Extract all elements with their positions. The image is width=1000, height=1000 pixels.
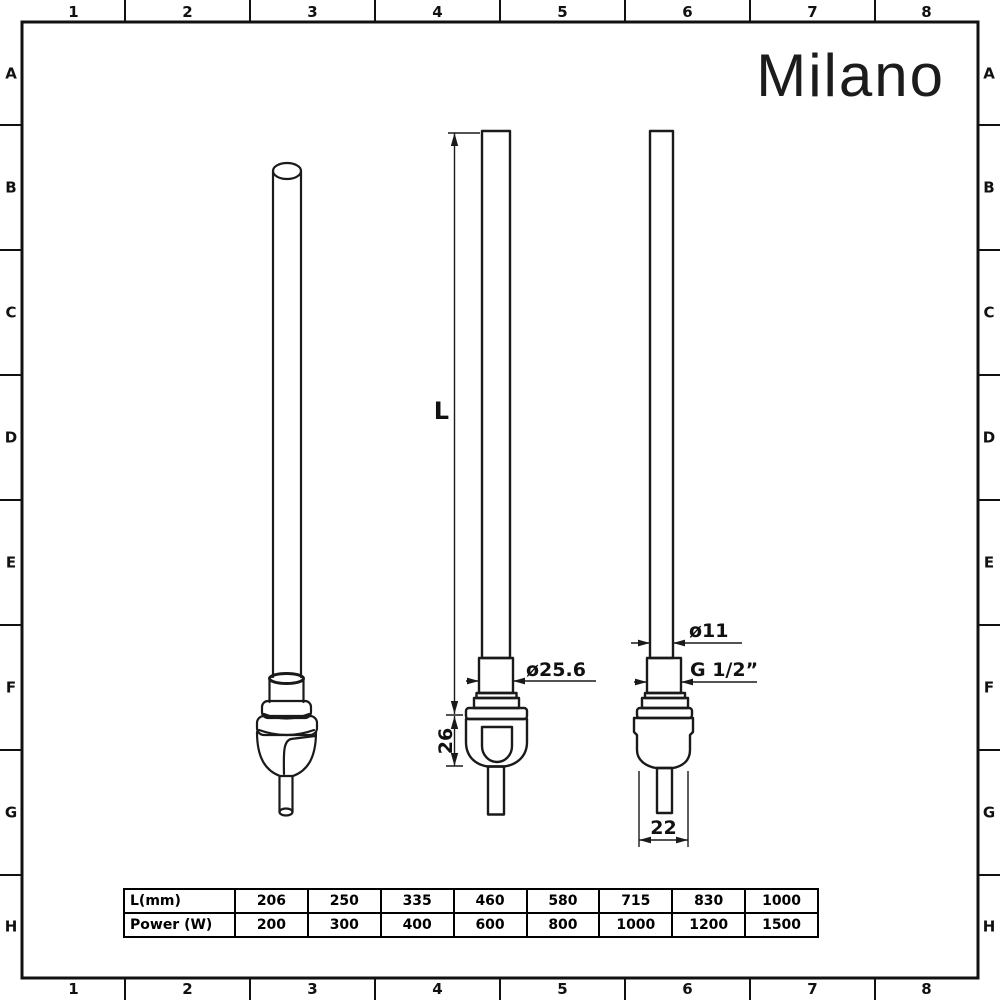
- table-cell: 460: [454, 889, 527, 913]
- collar-top-edge: [270, 674, 304, 684]
- bottom-stub: [657, 768, 672, 813]
- grid-column-label: 8: [921, 3, 931, 21]
- table-cell: 580: [527, 889, 600, 913]
- length-dimension-label: L: [434, 397, 449, 425]
- grid-row-label: D: [5, 429, 17, 447]
- grid-column-label: 4: [432, 3, 442, 21]
- table-cell: 715: [599, 889, 672, 913]
- table-cell: 600: [454, 913, 527, 937]
- thread-collar: [479, 658, 513, 693]
- perspective-view: [257, 163, 317, 816]
- side-view: [634, 131, 693, 813]
- stub-bottom-ellipse: [280, 809, 293, 816]
- grid-column-label: 2: [182, 980, 192, 998]
- body-inner-detail: [482, 727, 512, 762]
- drawing-sheet: 1 2 3 4 5 6 7 8 1 2 3 4 5 6 7 8 A B C D …: [0, 0, 1000, 1000]
- grid-column-label: 4: [432, 980, 442, 998]
- body-width-label: 22: [650, 817, 676, 839]
- table-cell: 1200: [672, 913, 745, 937]
- element-body: [634, 718, 693, 768]
- grid-column-label: 8: [921, 980, 931, 998]
- grid-row-label: D: [983, 429, 995, 447]
- frame-ticks: [0, 0, 1000, 1000]
- grid-column-label: 6: [682, 3, 692, 21]
- table-cell: 1000: [745, 889, 818, 913]
- thread-label: G 1/2”: [690, 659, 758, 681]
- grid-column-label: 5: [557, 3, 567, 21]
- table-cell: 200: [235, 913, 308, 937]
- grid-column-label: 3: [307, 980, 317, 998]
- front-view: [466, 131, 527, 815]
- table-cell: 206: [235, 889, 308, 913]
- grid-row-label: F: [984, 679, 994, 697]
- sheet-frame: [0, 0, 1000, 1000]
- grid-row-label: F: [6, 679, 16, 697]
- grid-column-label: 2: [182, 3, 192, 21]
- grid-row-label: G: [983, 804, 995, 822]
- grid-column-label: 1: [68, 3, 78, 21]
- grid-row-label: H: [5, 918, 18, 936]
- tube-top-ellipse: [273, 163, 301, 179]
- table-cell: 1000: [599, 913, 672, 937]
- table-cell: 400: [381, 913, 454, 937]
- grid-row-label: H: [983, 918, 996, 936]
- nut: [642, 698, 688, 708]
- brand-logo: Milano: [756, 42, 945, 109]
- grid-row-label: B: [5, 179, 16, 197]
- element-tube: [273, 171, 301, 677]
- table-row-power: Power (W) 200 300 400 600 800 1000 1200 …: [124, 913, 818, 937]
- grid-column-label: 7: [807, 3, 817, 21]
- tube-diameter-label: ø11: [689, 620, 729, 642]
- grid-row-label: C: [983, 304, 994, 322]
- table-cell: 830: [672, 889, 745, 913]
- table-cell: 335: [381, 889, 454, 913]
- element-tube: [482, 131, 510, 658]
- element-tube: [650, 131, 673, 658]
- element-body: [257, 732, 316, 776]
- grid-row-label: A: [983, 65, 995, 83]
- body-ring: [466, 708, 527, 719]
- bottom-stub: [280, 776, 293, 812]
- body-ring: [637, 708, 692, 718]
- grid-column-label: 6: [682, 980, 692, 998]
- grid-column-label: 3: [307, 3, 317, 21]
- spec-table: L(mm) 206 250 335 460 580 715 830 1000 P…: [123, 888, 819, 938]
- grid-column-label: 1: [68, 980, 78, 998]
- grid-row-label: E: [984, 554, 994, 572]
- table-cell: 1500: [745, 913, 818, 937]
- body-height-dimension-label: 26: [435, 728, 457, 754]
- thread-collar: [647, 658, 681, 693]
- table-cell: 800: [527, 913, 600, 937]
- grid-column-label: 5: [557, 980, 567, 998]
- bottom-stub: [488, 767, 504, 815]
- row-label: Power (W): [124, 913, 235, 937]
- technical-drawing-canvas: 1 2 3 4 5 6 7 8 1 2 3 4 5 6 7 8 A B C D …: [0, 0, 1000, 1000]
- body-panel-notch: [284, 736, 315, 774]
- frame-rectangle: [22, 22, 978, 978]
- grid-row-label: B: [983, 179, 994, 197]
- collar-diameter-label: ø25.6: [526, 659, 586, 681]
- table-cell: 300: [308, 913, 381, 937]
- grid-column-label: 7: [807, 980, 817, 998]
- grid-row-label: A: [5, 65, 17, 83]
- grid-row-label: E: [6, 554, 16, 572]
- row-label: L(mm): [124, 889, 235, 913]
- grid-row-label: G: [5, 804, 17, 822]
- grid-row-label: C: [5, 304, 16, 322]
- extension-lines: [446, 133, 480, 766]
- nut: [474, 698, 519, 708]
- table-cell: 250: [308, 889, 381, 913]
- table-row-length: L(mm) 206 250 335 460 580 715 830 1000: [124, 889, 818, 913]
